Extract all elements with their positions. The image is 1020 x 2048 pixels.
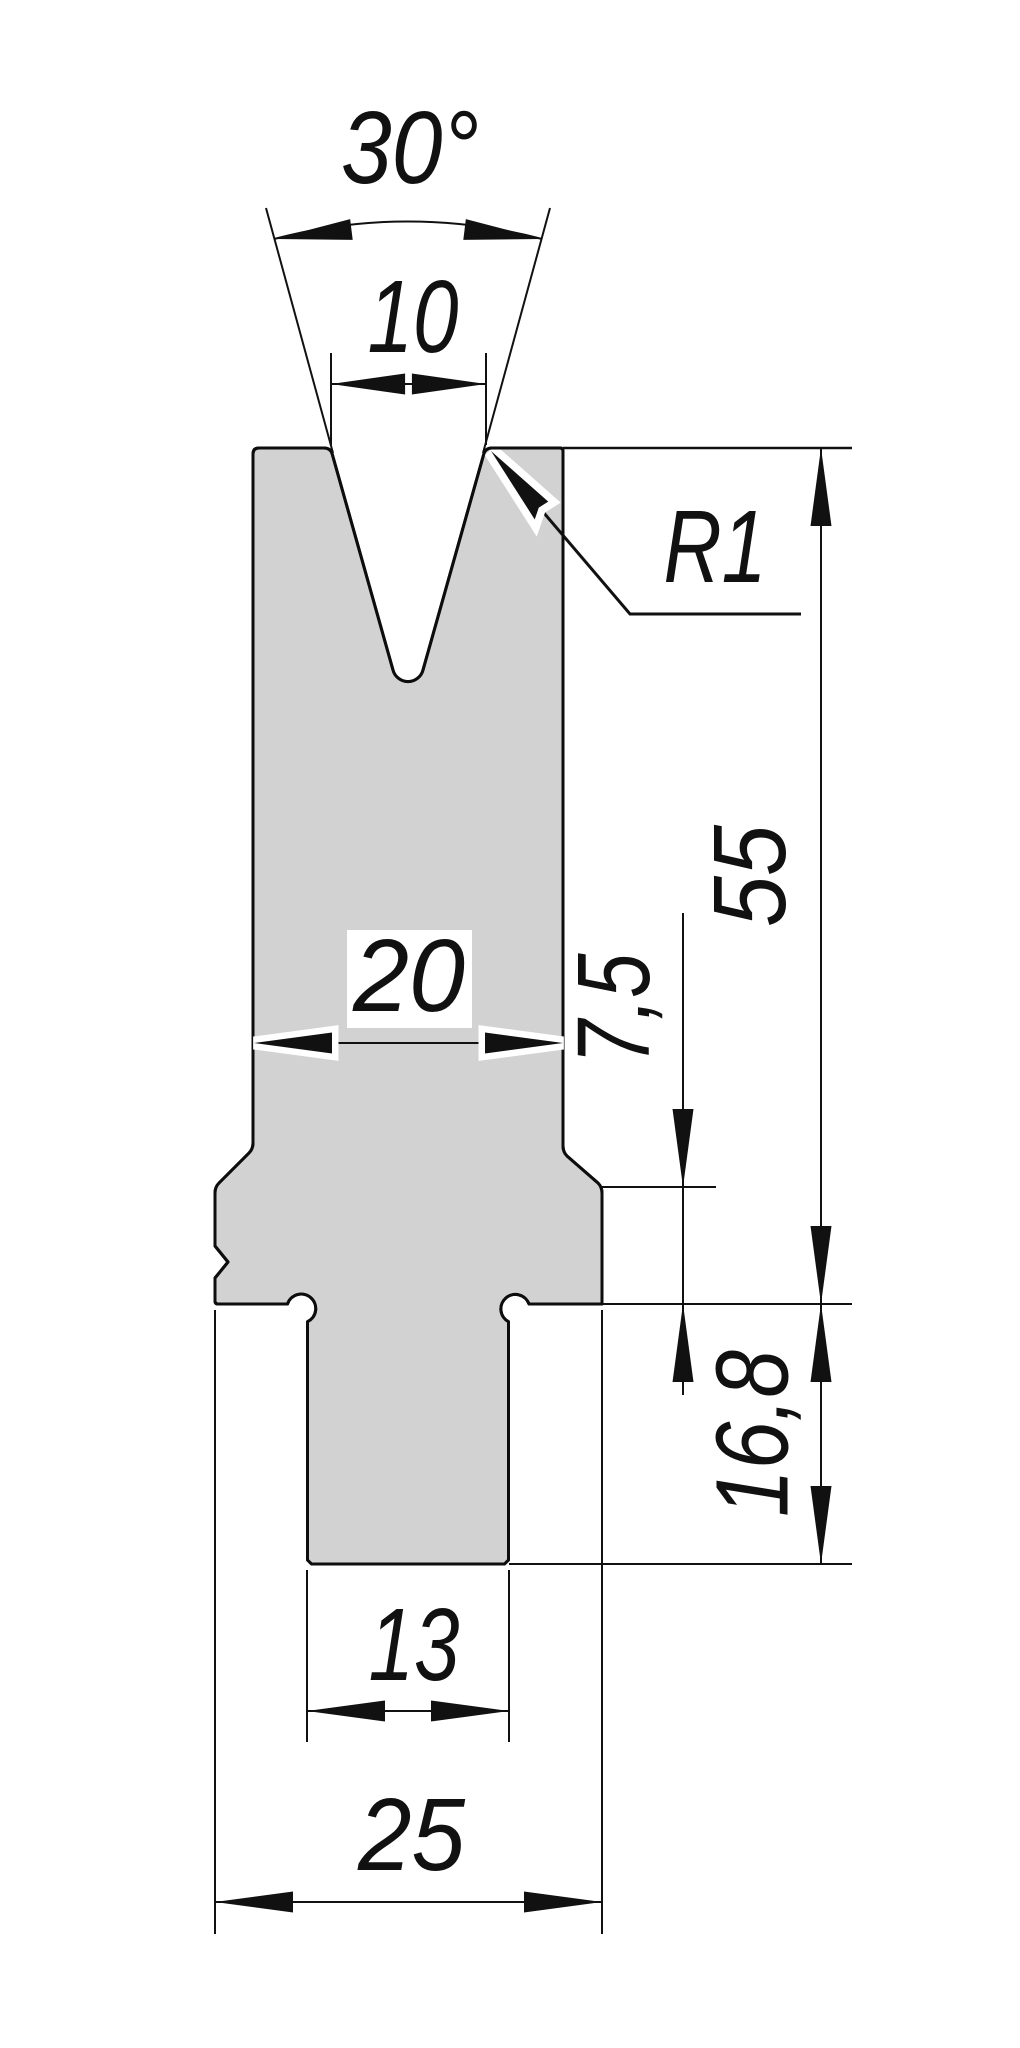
svg-text:30°: 30° bbox=[341, 90, 479, 205]
svg-text:20: 20 bbox=[352, 918, 465, 1033]
svg-text:13: 13 bbox=[369, 1587, 460, 1702]
svg-text:10: 10 bbox=[368, 259, 459, 374]
svg-text:16,8: 16,8 bbox=[695, 1350, 810, 1517]
svg-text:55: 55 bbox=[692, 824, 807, 927]
svg-text:25: 25 bbox=[357, 1777, 466, 1892]
svg-text:R1: R1 bbox=[664, 489, 767, 604]
svg-text:7,5: 7,5 bbox=[556, 953, 671, 1065]
